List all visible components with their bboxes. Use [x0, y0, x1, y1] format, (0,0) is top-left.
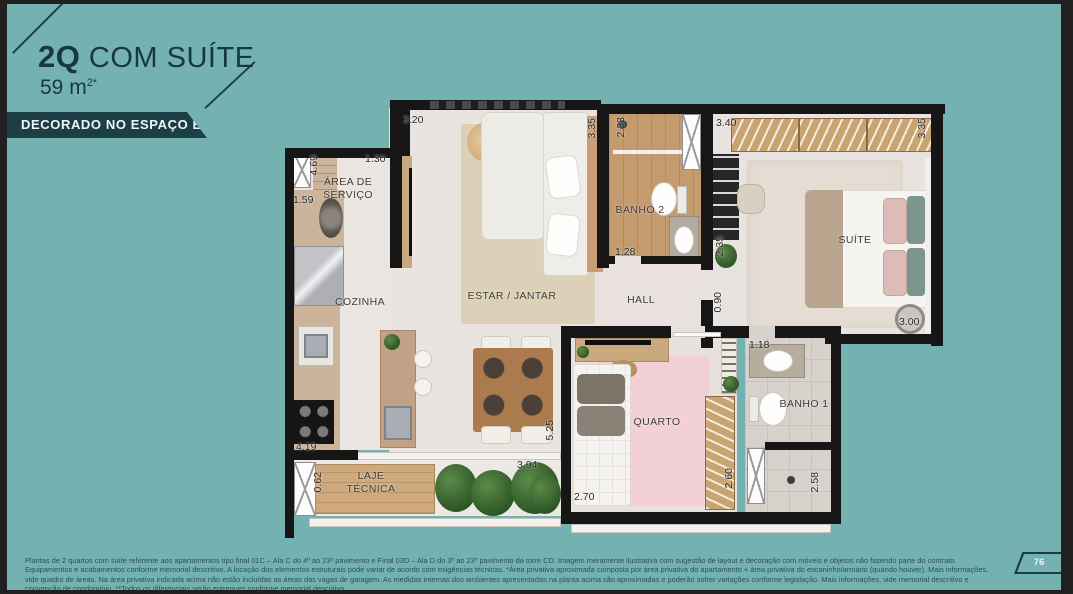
dim-0-62: 0.62	[312, 472, 324, 492]
dim-0-90: 0.90	[712, 292, 724, 312]
banho1-door-opening	[749, 326, 775, 338]
vanity-sink	[674, 226, 694, 254]
quarto-pillow	[577, 406, 625, 436]
wall	[931, 104, 943, 346]
room-label-area-servico: ÁREA DE SERVIÇO	[313, 176, 383, 202]
suite-wardrobe	[731, 118, 935, 152]
dim-3-20: 3.20	[403, 114, 423, 126]
quarto-door-leaf	[673, 332, 721, 337]
duct-shaft	[682, 114, 701, 170]
area-size: 59 m2*	[40, 76, 97, 100]
wall	[825, 334, 943, 344]
frame-left	[0, 0, 7, 594]
dim-3-00: 3.00	[899, 316, 919, 328]
room-label-estar-jantar: ESTAR / JANTAR	[457, 290, 567, 303]
floor-plan: ÁREA DE SERVIÇO COZINHA ESTAR / JANTAR B…	[285, 98, 957, 548]
title-unit-type: 2Q	[38, 39, 80, 74]
shower-handle	[787, 476, 795, 484]
wall	[390, 100, 410, 156]
suite-pillow	[883, 198, 907, 244]
toilet-tank	[749, 396, 759, 422]
kitchen-sink-basin	[304, 334, 328, 358]
wall	[285, 148, 294, 538]
duct-shaft	[747, 448, 765, 504]
dim-5-25: 5.25	[544, 420, 556, 440]
room-label-hall: HALL	[619, 294, 663, 307]
wall	[831, 334, 841, 524]
dim-3-35-suite: 3.35	[916, 118, 928, 138]
dining-table	[473, 348, 553, 432]
suite-wall-face	[925, 158, 931, 338]
suite-armchair	[737, 184, 765, 214]
dim-2-60: 2.60	[723, 468, 735, 488]
wall	[597, 104, 945, 114]
desk-plant	[577, 346, 589, 358]
washing-machine	[319, 198, 343, 238]
tv-partition-wall	[390, 156, 402, 268]
suite-cushion	[907, 196, 925, 244]
cooktop	[294, 400, 334, 444]
quarto-wardrobe	[705, 396, 735, 510]
wardrobe-divider	[798, 118, 800, 152]
sofa-chaise	[481, 112, 545, 240]
dim-2-33: 2.33	[615, 117, 627, 137]
suite-pillow	[883, 250, 907, 296]
sofa-pillow	[545, 212, 581, 257]
laje-plant	[471, 470, 515, 516]
window-band	[430, 101, 565, 109]
dim-4-19: 4.19	[296, 441, 316, 453]
room-label-banho2: BANHO 2	[611, 204, 669, 217]
wardrobe-divider	[866, 118, 868, 152]
dim-1-30: 1.30	[365, 153, 385, 165]
window-sill	[571, 524, 831, 533]
room-label-banho1: BANHO 1	[775, 398, 833, 411]
frame-top	[0, 0, 1073, 4]
wall	[597, 104, 609, 268]
shower-wall	[765, 442, 831, 450]
dim-3-94: 3.94	[517, 459, 537, 471]
quarto-pillow	[577, 374, 625, 404]
legal-disclaimer: Plantas de 2 quartos com suíte referente…	[25, 556, 993, 594]
page-number: 76	[1017, 554, 1061, 572]
dim-2-58: 2.58	[809, 472, 821, 492]
wall	[561, 512, 841, 524]
banho1-sink	[763, 350, 793, 372]
room-label-cozinha: COZINHA	[325, 296, 395, 309]
stool	[414, 350, 432, 368]
stool	[414, 378, 432, 396]
title-suffix: COM SUÍTE	[80, 42, 254, 74]
dim-4-69: 4.69	[308, 155, 320, 175]
tv-screen	[409, 168, 412, 256]
page-title: 2Q COM SUÍTE	[38, 40, 255, 80]
frame-bottom	[0, 590, 1073, 594]
laje-plant	[529, 474, 561, 514]
decorado-banner: DECORADO NO ESPAÇO EBM	[7, 112, 207, 138]
quarto-plant	[723, 376, 739, 392]
suite-blanket	[805, 190, 843, 308]
room-label-quarto: QUARTO	[627, 416, 687, 429]
dim-3-35-estar: 3.35	[586, 118, 598, 138]
dim-1-59: 1.59	[293, 194, 313, 206]
dim-1-28: 1.28	[615, 246, 635, 258]
sofa-pillow	[544, 154, 582, 200]
island-sink	[384, 406, 412, 440]
suite-cushion	[907, 248, 925, 296]
dim-3-40: 3.40	[716, 117, 736, 129]
toilet-tank	[677, 186, 687, 214]
island-plant	[384, 334, 400, 350]
quarto-tv	[585, 340, 651, 345]
wall	[561, 326, 571, 524]
marketing-page: 2Q COM SUÍTE 59 m2* DECORADO NO ESPAÇO E…	[0, 0, 1073, 594]
suite-closet	[713, 154, 739, 240]
dim-2-35: 2.35	[714, 236, 726, 256]
dining-chair	[481, 426, 511, 444]
dim-2-70: 2.70	[574, 491, 594, 503]
dim-1-18: 1.18	[749, 339, 769, 351]
frame-right	[1061, 0, 1073, 594]
window-sill	[309, 518, 561, 527]
room-label-suite: SUÍTE	[830, 234, 880, 247]
room-label-laje-tecnica: LAJE TÉCNICA	[333, 470, 409, 496]
floor-hall-opening	[597, 266, 609, 328]
